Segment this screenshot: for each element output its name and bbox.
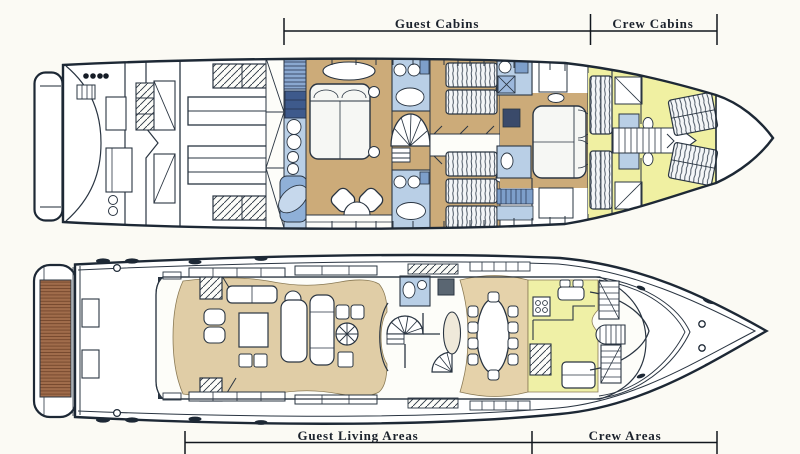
svg-text:Guest Living Areas: Guest Living Areas: [297, 428, 418, 443]
svg-text:Crew Areas: Crew Areas: [589, 428, 662, 443]
svg-text:Guest Cabins: Guest Cabins: [395, 16, 479, 31]
svg-text:Crew Cabins: Crew Cabins: [612, 16, 693, 31]
